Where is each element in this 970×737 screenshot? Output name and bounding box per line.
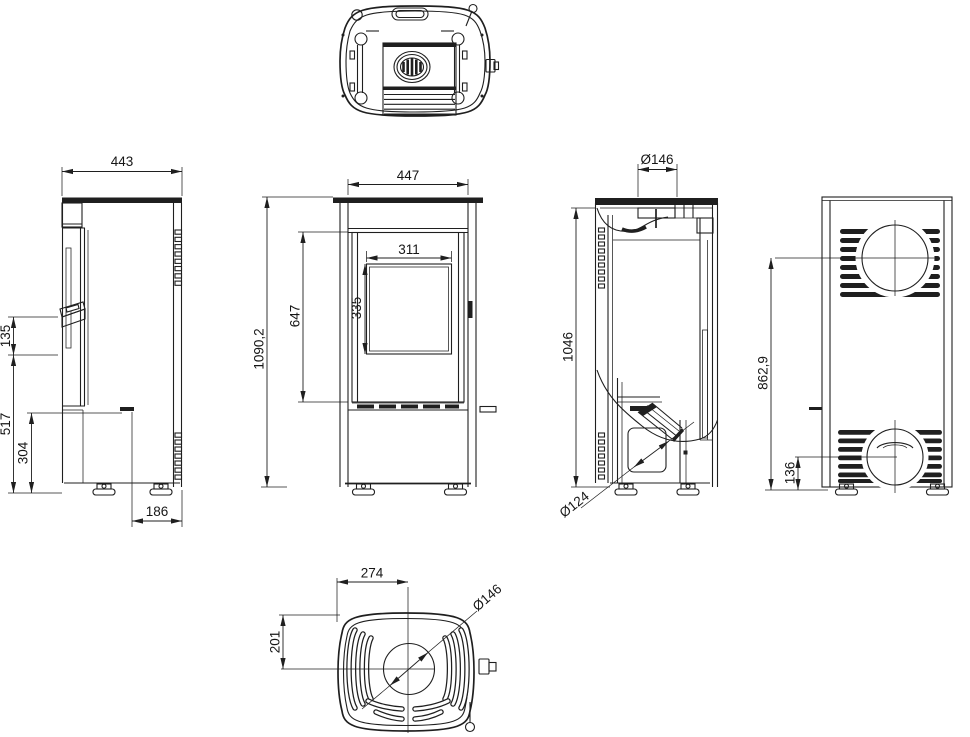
handle-pin — [120, 407, 134, 411]
dim-label: 1090,2 — [252, 328, 267, 369]
front-door-handle — [469, 301, 473, 318]
top-plate-cut — [595, 198, 718, 205]
wall-bracket — [809, 407, 822, 410]
dim-label: 201 — [268, 631, 283, 654]
dim-label: 1046 — [561, 332, 576, 362]
dim-label: 443 — [111, 154, 134, 169]
top-plate — [62, 198, 182, 204]
dim-label: 335 — [349, 297, 364, 320]
background — [0, 0, 970, 737]
dim-label: 447 — [397, 168, 420, 183]
dim-label: 517 — [0, 413, 13, 436]
dim-label: 136 — [783, 462, 798, 485]
dim-label: Ø146 — [640, 152, 673, 167]
stove-technical-drawing: 443 135 517 304 186 — [0, 0, 970, 737]
dim-label: 186 — [146, 504, 169, 519]
top-plate — [333, 198, 483, 204]
side-tab — [480, 407, 496, 413]
dim-label: 311 — [398, 242, 420, 257]
dim-label: 135 — [0, 325, 13, 348]
dim-label: 304 — [16, 441, 31, 464]
dim-label: 274 — [361, 566, 384, 581]
dim-label: 862,9 — [756, 356, 771, 390]
technical-drawing-page: 443 135 517 304 186 — [0, 0, 970, 737]
dim-label: 647 — [288, 305, 303, 328]
